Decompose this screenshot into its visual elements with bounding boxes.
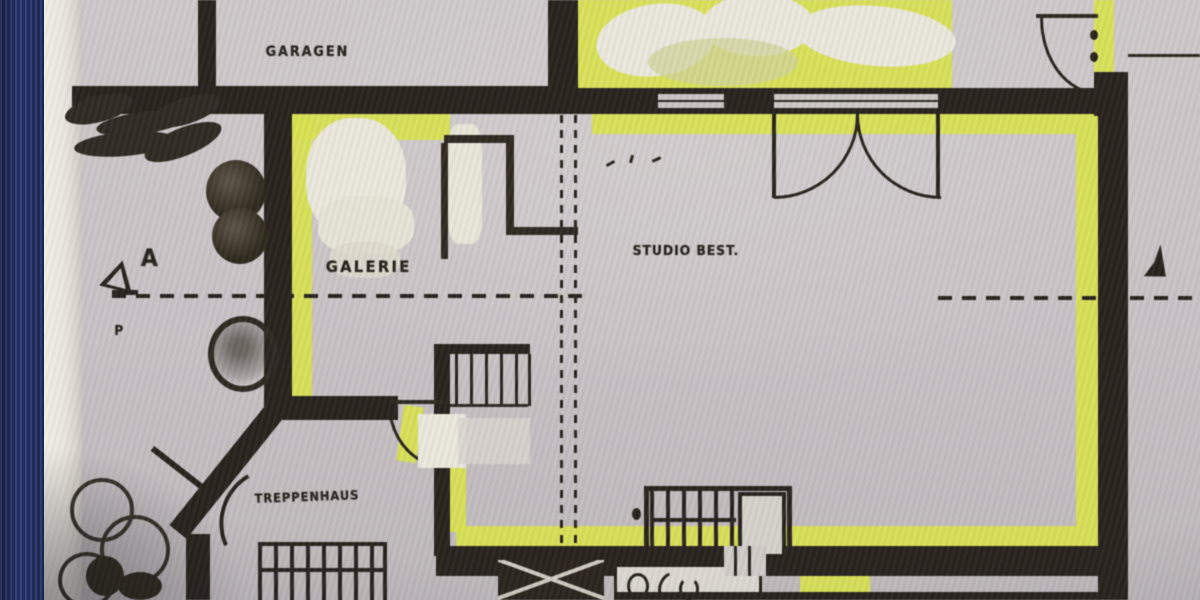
section-marker-sub: P: [114, 324, 124, 339]
stairs-mid: [440, 354, 531, 406]
door-opening-threshold: [774, 92, 938, 110]
section-line: [112, 294, 592, 298]
shaft-x-box: [498, 560, 604, 600]
partition-wall: [444, 135, 514, 143]
section-line-start: [112, 290, 138, 295]
door-arc-left: [774, 114, 859, 199]
plant-filled: [118, 572, 162, 600]
tree-drawing: [208, 316, 278, 392]
dashed-line-vertical: [560, 100, 563, 558]
plan-drawing: GARAGEN STUDIO BEST. A: [0, 0, 1200, 600]
partition-wall: [506, 227, 578, 235]
tree-drawing: [212, 208, 268, 264]
stair-mid-line: [650, 518, 736, 522]
stair-mid-line: [258, 568, 383, 572]
whiteout-patch: [458, 418, 530, 464]
dashed-line-vertical: [574, 100, 577, 558]
section-marker-triangle: [99, 256, 139, 293]
floor-plan-photo: GARAGEN STUDIO BEST. A: [0, 0, 1200, 600]
pen-mark: [652, 156, 661, 163]
wall-hatch-opening: [724, 546, 766, 576]
section-marker-right: [1144, 243, 1171, 280]
window-opening: [658, 92, 724, 110]
pen-mark: [629, 155, 634, 164]
highlight-wall-studio-right: [1076, 114, 1098, 546]
room-label-studio: STUDIO BEST.: [628, 243, 744, 259]
door-hinge-dot: [1090, 52, 1098, 62]
section-marker-letter: A: [140, 244, 159, 272]
binder-spine: [0, 0, 44, 600]
room-label-garage: GARAGEN: [262, 44, 353, 60]
wall-studio-right: [1098, 88, 1128, 600]
column-dot: [632, 508, 641, 520]
wall-bottom-edge: [614, 592, 1114, 600]
partition-wall: [506, 135, 514, 235]
plant-stroke: [151, 446, 218, 500]
whiteout-blob: [648, 38, 798, 86]
wall-garage-right: [548, 0, 578, 112]
stair-top-rail: [438, 344, 530, 354]
room-label-gallery: GALERIE: [322, 257, 415, 276]
pen-mark: [606, 160, 615, 167]
partition-wall: [441, 143, 448, 259]
wall-garage-bottom: [72, 86, 578, 114]
site-line-top-right: [1128, 54, 1200, 57]
door-arc-right: [856, 114, 941, 199]
door-hinge-dot: [1090, 30, 1098, 40]
wall-stairwell-left: [186, 534, 210, 600]
section-line: [938, 296, 1200, 300]
hedge-scribble: [84, 96, 100, 108]
stair-bottom-line: [442, 404, 528, 407]
wall-garage-left: [198, 0, 216, 100]
